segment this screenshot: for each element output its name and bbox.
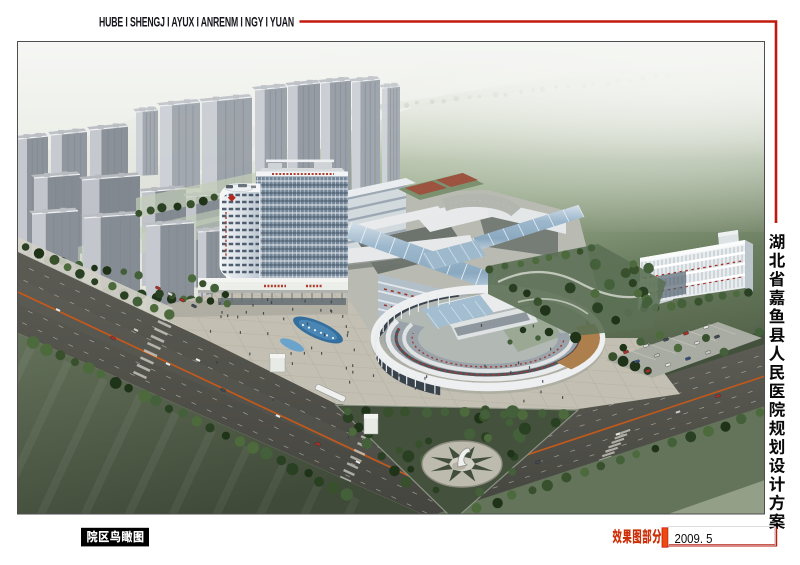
svg-text:HUBE I SHENGJ I AYUX I ANRENM: HUBE I SHENGJ I AYUX I ANRENM I NGY I YU… [99, 15, 294, 30]
svg-text:2009. 5: 2009. 5 [675, 532, 713, 546]
